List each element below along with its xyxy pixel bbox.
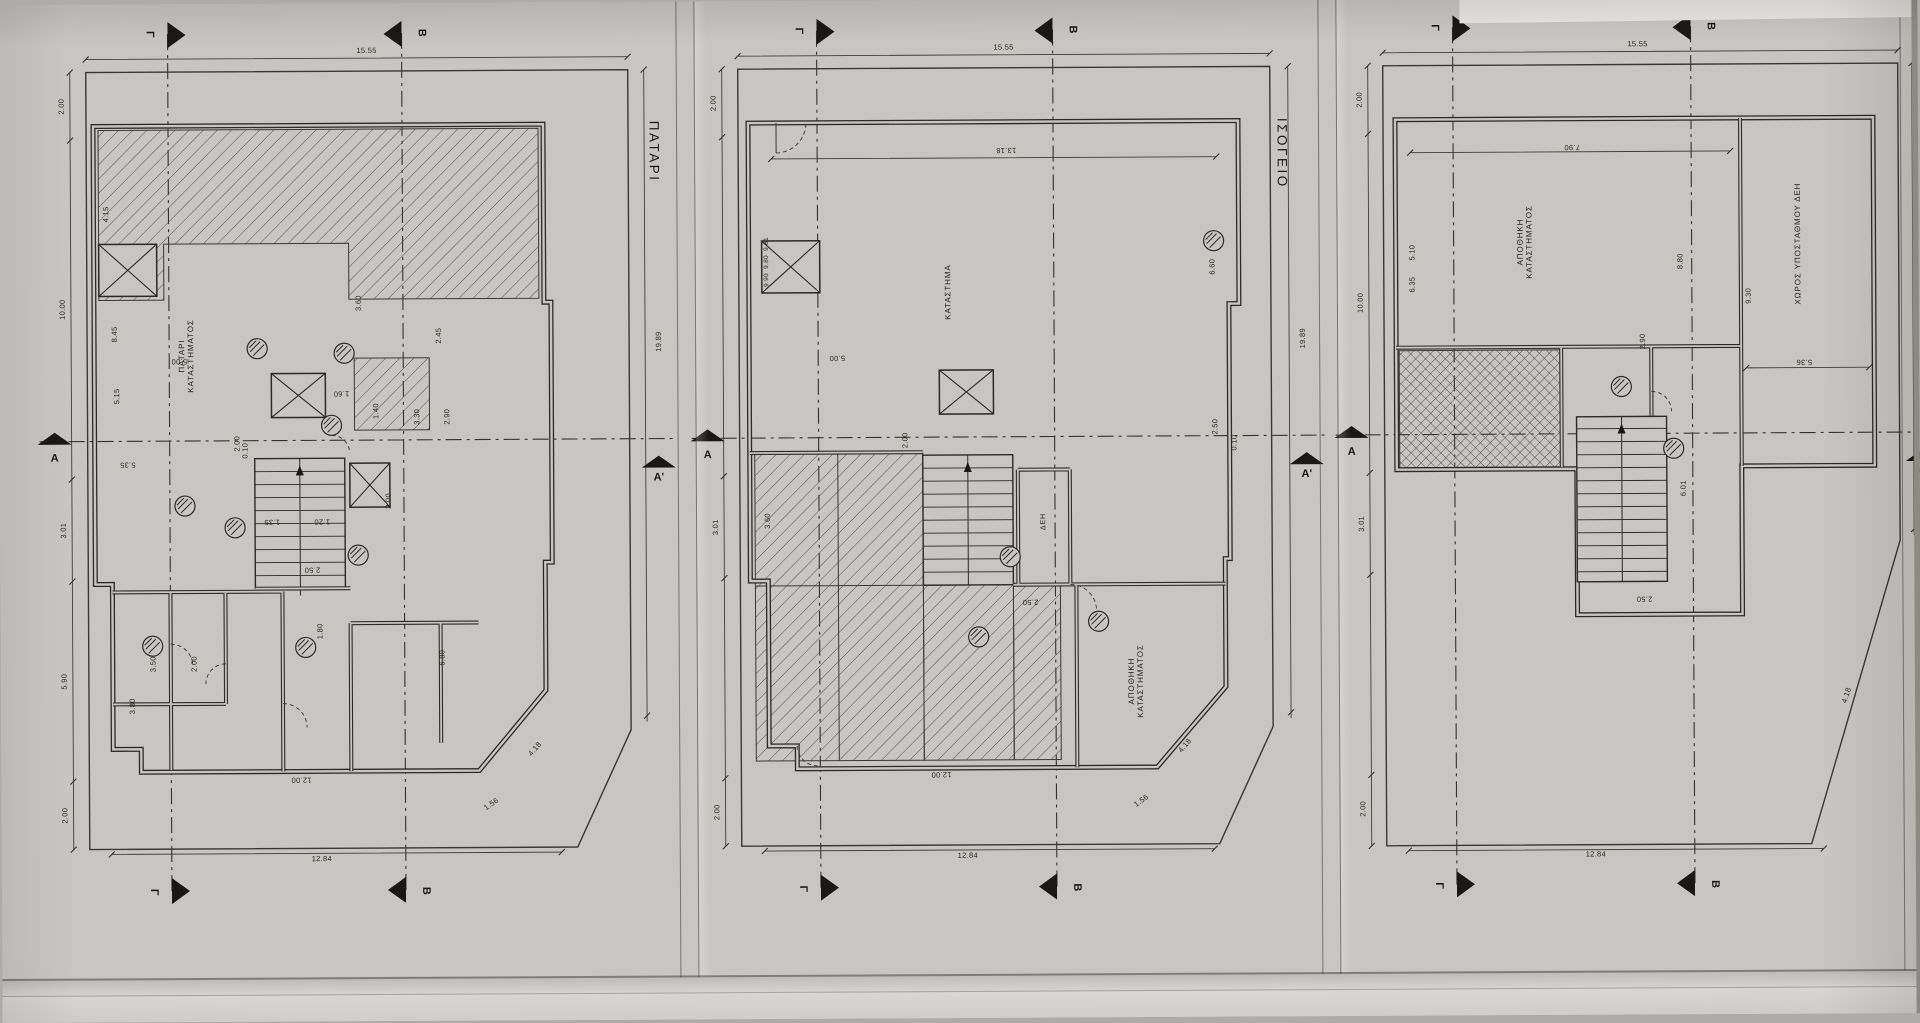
shaft-box: [99, 244, 157, 296]
mezzanine-hatch: [98, 128, 539, 300]
floor-plan-panel-isogeio: ΙΣΟΓΕΙΟ 15.5512.8419.892.009.819.809.903…: [675, 0, 1340, 1019]
plan-drawing-patari: [17, 1, 682, 1022]
plan-drawing-isogeio: [675, 0, 1340, 1019]
plan-title: ΙΣΟΓΕΙΟ: [1274, 118, 1289, 189]
cross-hatched-block: [1399, 350, 1562, 468]
elevator-box: [271, 373, 325, 417]
wet-area-hatch: [354, 358, 429, 430]
door-swing-arcs: [1651, 391, 1671, 411]
plan-title: ΠΑΤΑΡΙ: [646, 121, 661, 183]
blueprint-photo: ΠΑΤΑΡΙ 15.5512.8419.892.0010.003.015.902…: [0, 0, 1920, 1023]
staircase: [1577, 416, 1668, 581]
shaft-box: [762, 241, 820, 293]
hatched-storage-zone: [755, 451, 1062, 761]
entrance-door-arc: [776, 123, 806, 153]
staircase: [923, 455, 1014, 585]
duct-box: [350, 463, 390, 507]
plan-drawing-third: [1319, 0, 1920, 1016]
floor-plan-panel-patari: ΠΑΤΑΡΙ 15.5512.8419.892.0010.003.015.902…: [17, 1, 682, 1022]
interior-walls: [112, 588, 479, 773]
elevator-box: [939, 370, 993, 414]
floor-plan-panel-third: 15.5512.8419.892.0010.003.012.007.905.10…: [1319, 0, 1920, 1016]
staircase: [255, 458, 346, 595]
